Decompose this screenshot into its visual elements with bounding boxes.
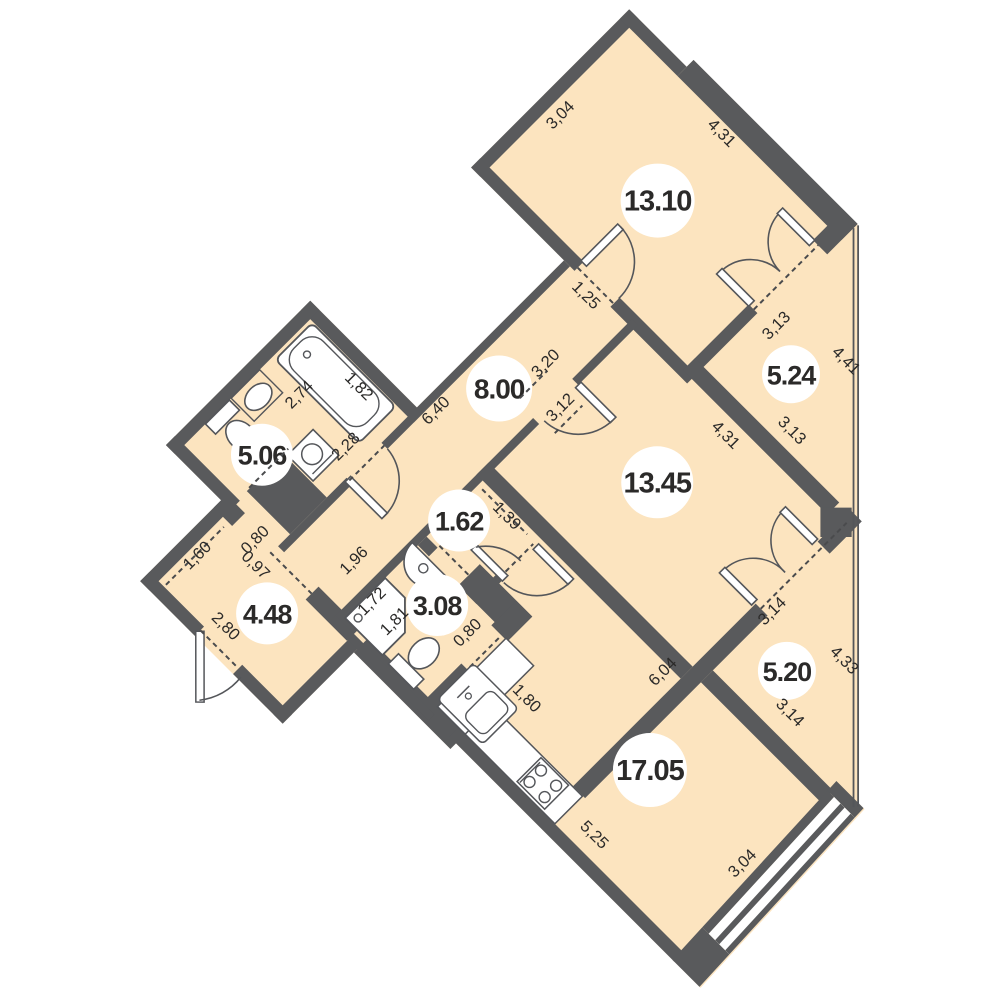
svg-text:8.00: 8.00 [474,374,525,405]
svg-text:1.62: 1.62 [435,506,484,536]
svg-text:5.20: 5.20 [763,657,812,687]
svg-text:13.45: 13.45 [623,467,691,499]
svg-text:3.08: 3.08 [413,591,463,621]
svg-text:5.24: 5.24 [767,360,817,390]
svg-text:4.48: 4.48 [243,599,293,629]
svg-text:17.05: 17.05 [616,755,684,787]
svg-text:13.10: 13.10 [624,186,692,218]
svg-text:5.06: 5.06 [238,441,288,471]
